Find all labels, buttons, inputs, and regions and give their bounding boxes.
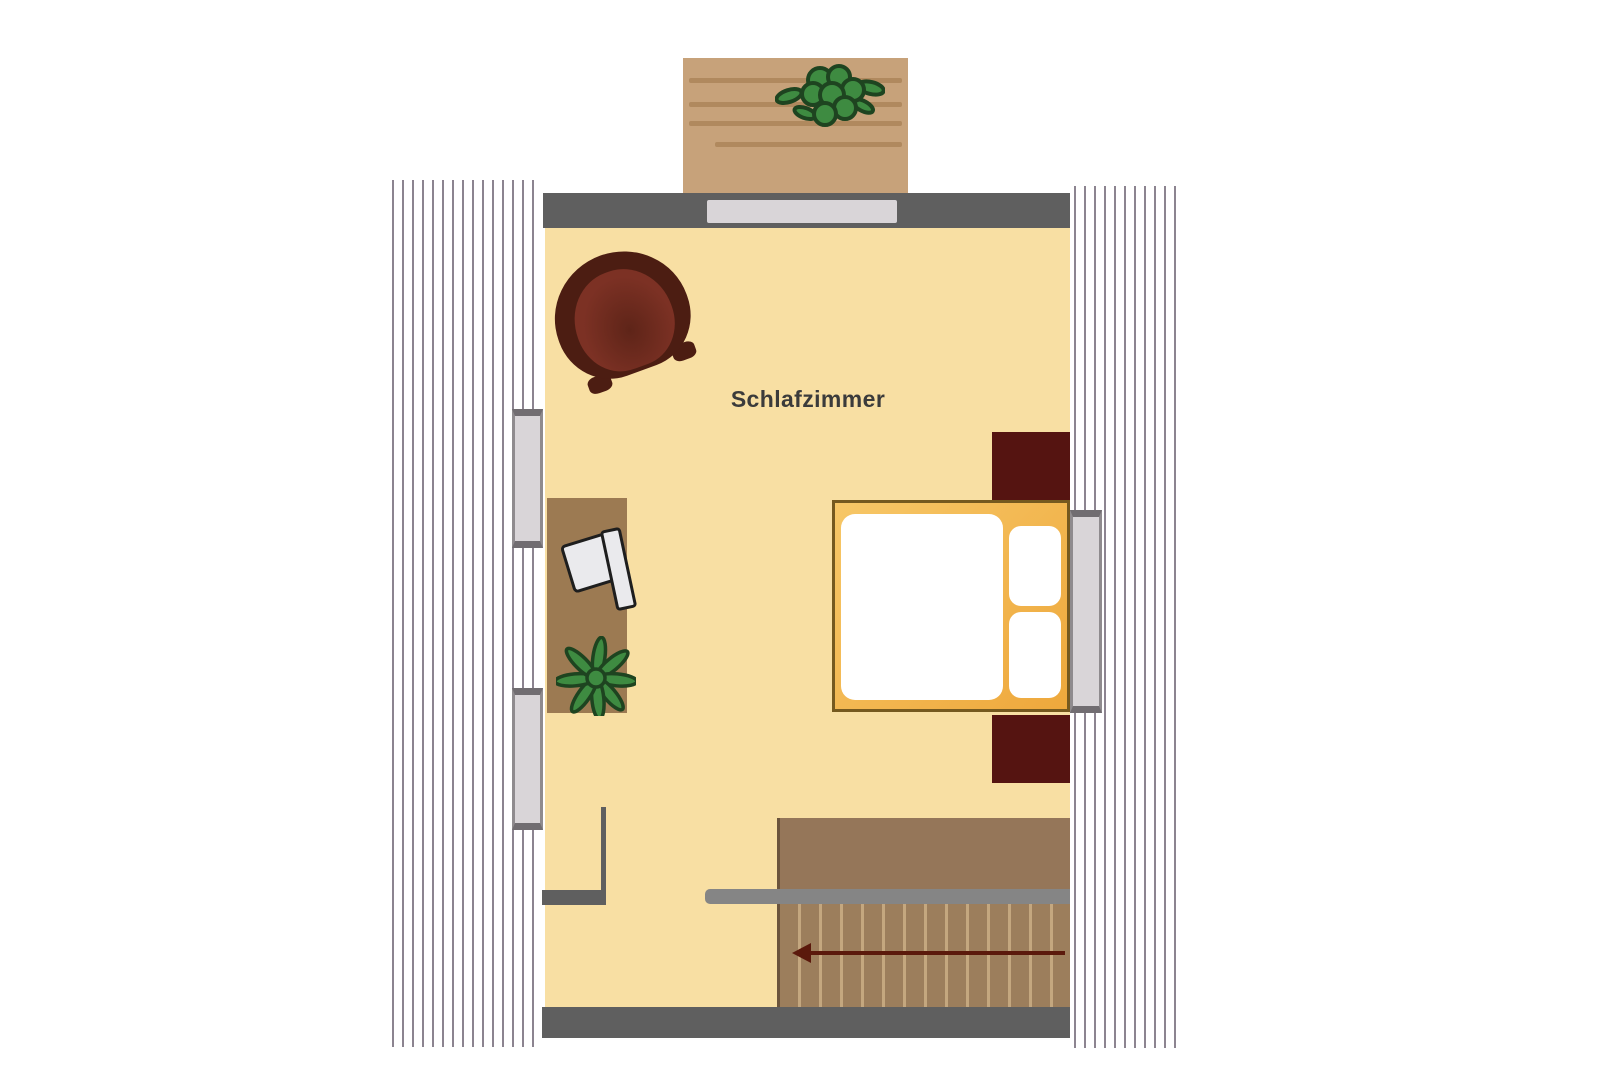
stairs-steps (777, 904, 1070, 1007)
wall-bottom (542, 1007, 1070, 1038)
roof-slope-hatch-left (392, 180, 542, 1047)
desk-plant-icon (556, 636, 636, 716)
double-bed (832, 500, 1070, 712)
nightstand-bottom (992, 715, 1070, 783)
stairs-railing (705, 889, 1070, 904)
floorplan-canvas: Schlafzimmer (0, 0, 1606, 1070)
room-label: Schlafzimmer (698, 386, 918, 413)
nightstand-top (992, 432, 1070, 502)
wall-partial-door-side (542, 890, 606, 905)
window-right (1070, 510, 1102, 713)
open-door-leaf (601, 807, 606, 892)
bed-duvet (841, 514, 1003, 700)
balcony-plant-icon (775, 58, 885, 134)
window-left-upper (512, 409, 543, 548)
deck-board-line (715, 142, 902, 147)
bed-pillow-bottom (1009, 612, 1061, 698)
stairs-direction-arrow (808, 951, 1065, 955)
balcony-door (707, 200, 897, 223)
window-left-lower (512, 688, 543, 830)
stairs-upper-landing (777, 818, 1070, 889)
bed-pillow-top (1009, 526, 1061, 606)
